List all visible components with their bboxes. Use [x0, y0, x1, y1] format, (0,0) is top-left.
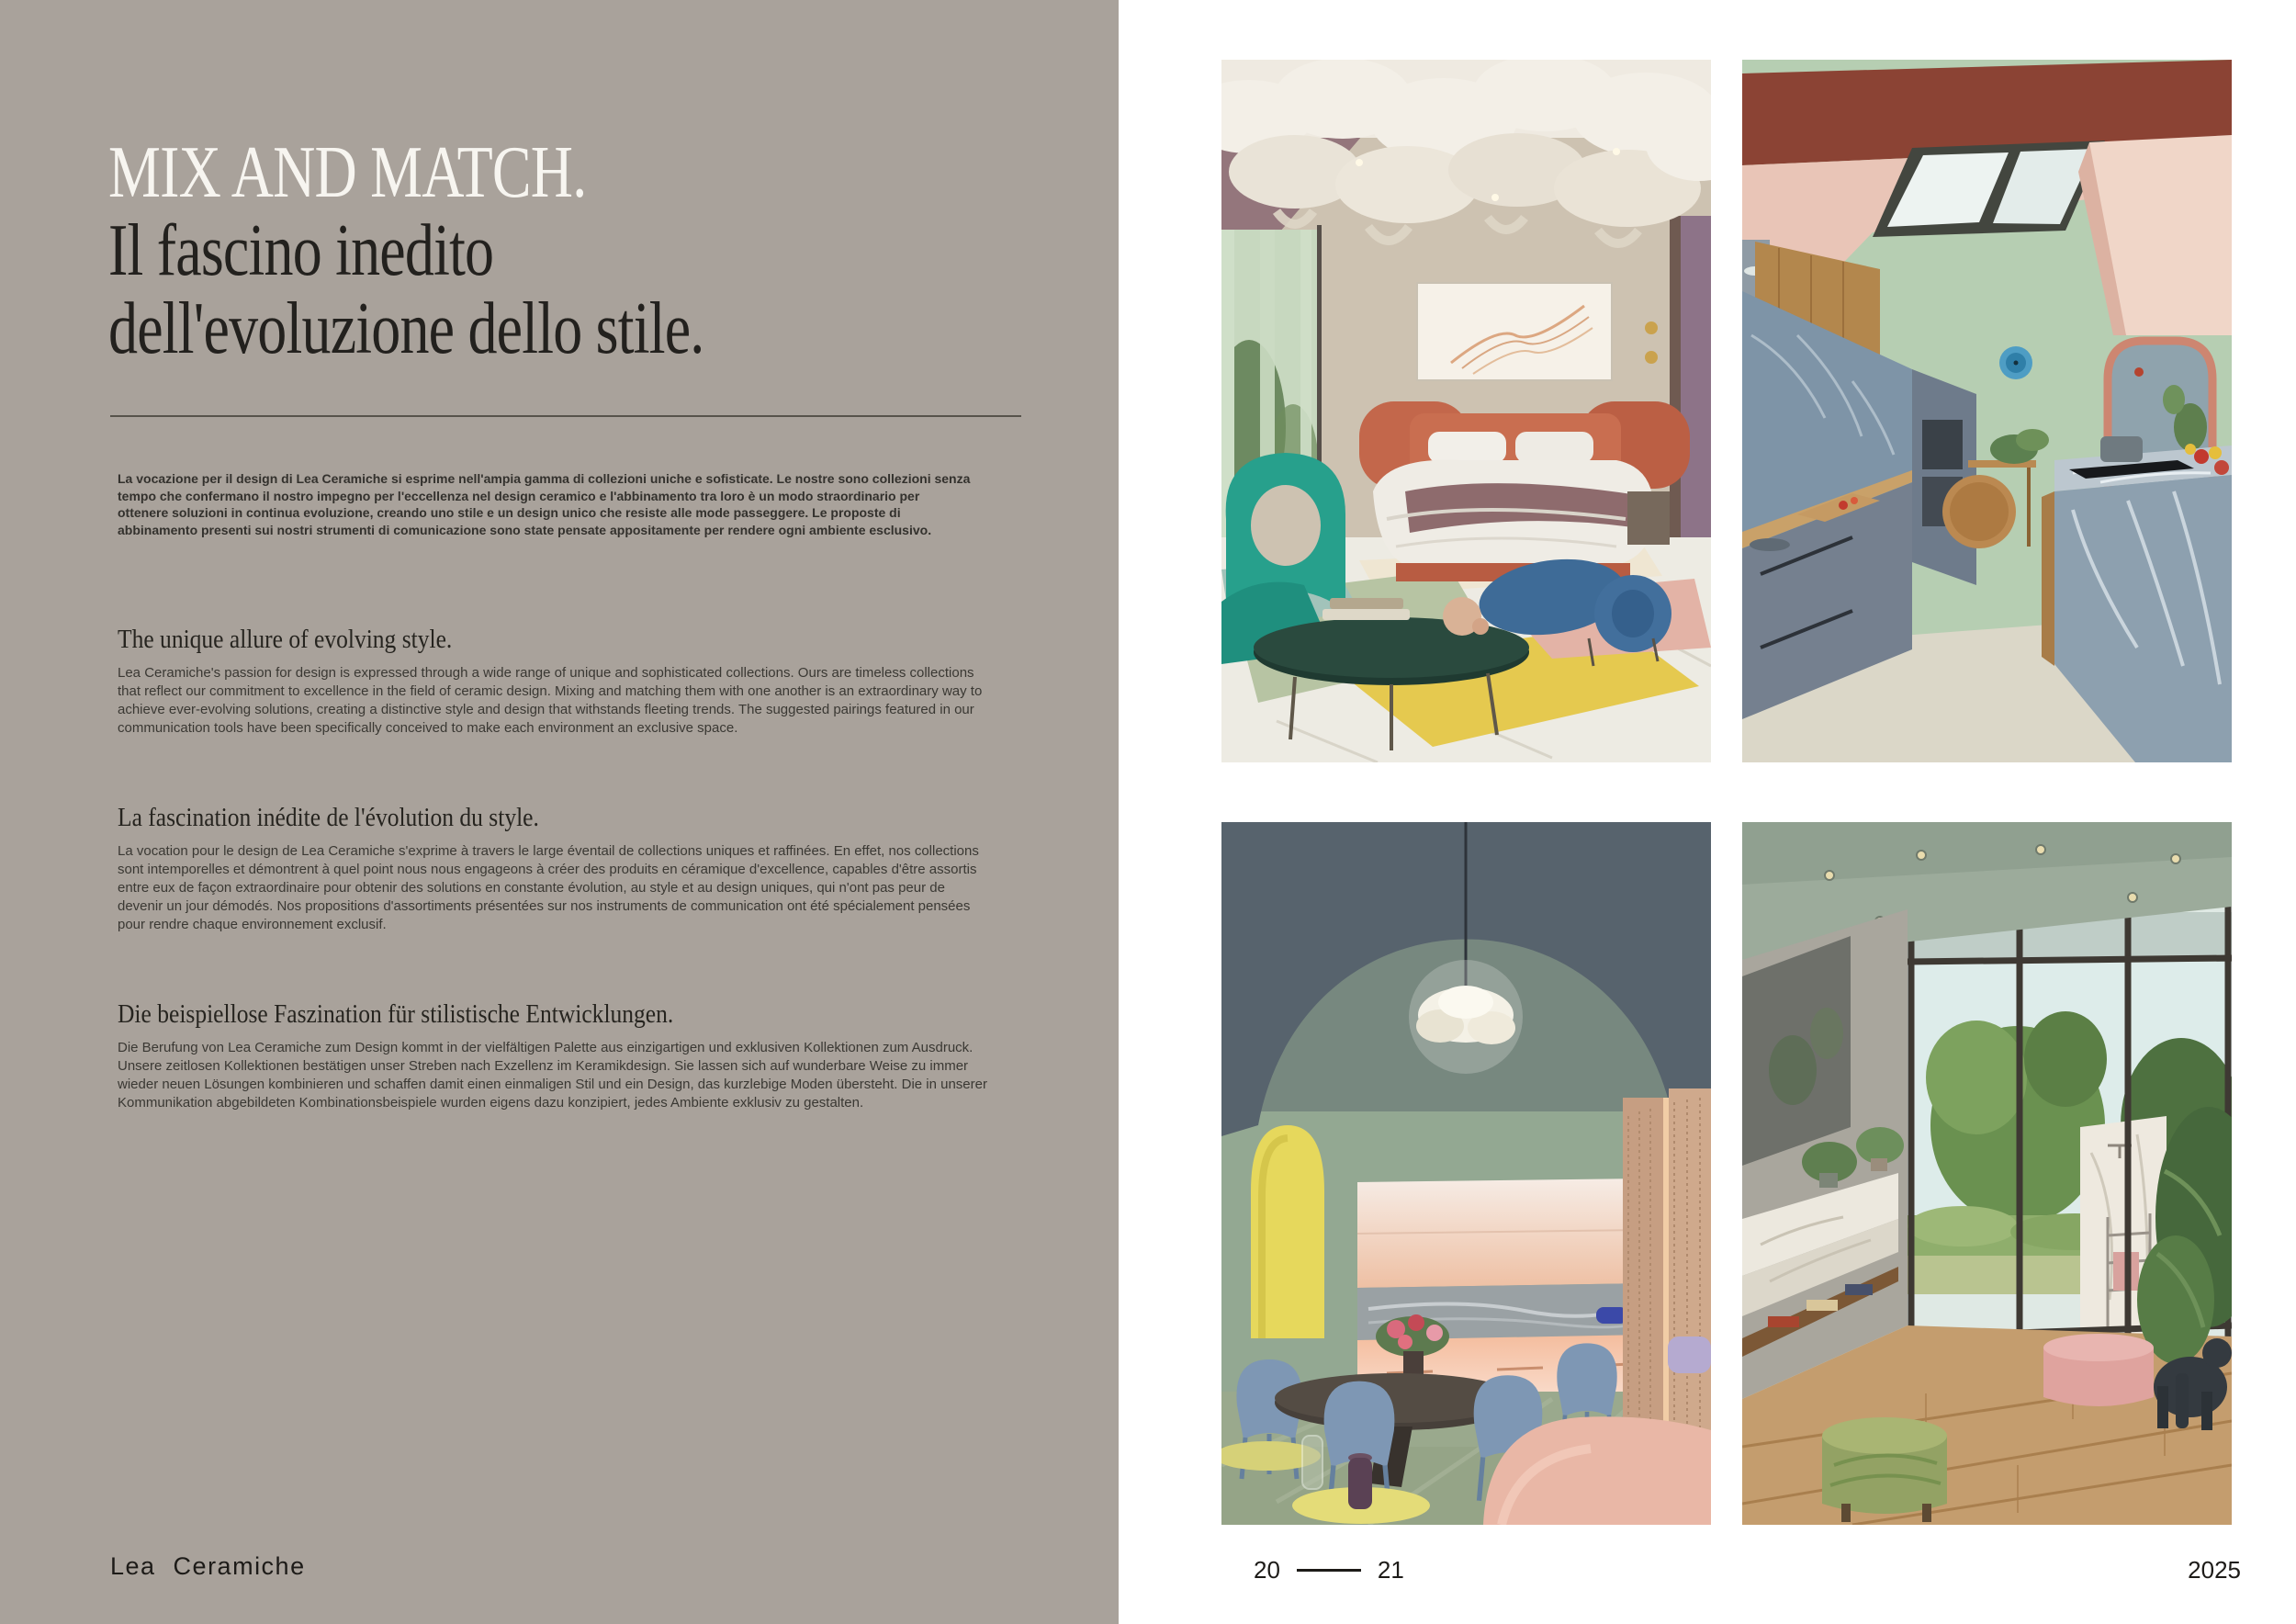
- lavender-bench: [1668, 1336, 1711, 1373]
- wall-sconce: [1645, 351, 1658, 364]
- bedroom-illustration: [1221, 60, 1711, 762]
- section-german: Die beispiellose Faszination für stilist…: [118, 999, 990, 1112]
- pagination: 20 21: [1254, 1556, 1404, 1585]
- divider-rule: [110, 415, 1021, 417]
- pink-pouf: [2043, 1334, 2154, 1406]
- page-number-right: 21: [1378, 1556, 1404, 1585]
- page-number-left: 20: [1254, 1556, 1280, 1585]
- section-body-fr: La vocation pour le design de Lea Cerami…: [118, 842, 990, 934]
- year-label: 2025: [2188, 1556, 2241, 1585]
- bathroom-patio-illustration: [1742, 822, 2232, 1525]
- left-page: MIX AND MATCH. Il fascino inedito dell'e…: [0, 0, 1119, 1624]
- page-dash: [1297, 1569, 1361, 1572]
- page-title: MIX AND MATCH. Il fascino inedito dell'e…: [108, 134, 853, 368]
- photo-dining-room: [1221, 822, 1711, 1525]
- wall-clock: [1999, 346, 2032, 379]
- section-english: The unique allure of evolving style. Lea…: [118, 625, 990, 738]
- catalog-spread: MIX AND MATCH. Il fascino inedito dell'e…: [0, 0, 2296, 1624]
- title-line-3: dell'evoluzione dello stile.: [108, 290, 704, 368]
- section-heading-en: The unique allure of evolving style.: [118, 625, 885, 655]
- wall-sconce: [1645, 321, 1658, 334]
- section-body-de: Die Berufung von Lea Ceramiche zum Desig…: [118, 1039, 990, 1112]
- section-heading-fr: La fascination inédite de l'évolution du…: [118, 803, 885, 833]
- purple-curtain: [1681, 216, 1711, 583]
- title-line-1: MIX AND MATCH.: [108, 134, 704, 212]
- section-heading-de: Die beispiellose Faszination für stilist…: [118, 999, 885, 1030]
- section-body-en: Lea Ceramiche's passion for design is ex…: [118, 664, 990, 738]
- kitchen-illustration: [1742, 60, 2232, 762]
- section-french: La fascination inédite de l'évolution du…: [118, 803, 990, 934]
- photo-kitchen: [1742, 60, 2232, 762]
- title-line-2: Il fascino inedito: [108, 212, 704, 290]
- intro-paragraph-italian: La vocazione per il design di Lea Cerami…: [118, 470, 972, 538]
- photo-bathroom-patio: [1742, 822, 2232, 1525]
- photo-bedroom: [1221, 60, 1711, 762]
- nightstand: [1627, 491, 1670, 545]
- leaf-print-pouf: [1822, 1417, 1947, 1522]
- dining-room-illustration: [1221, 822, 1711, 1525]
- wall-artwork: [1417, 283, 1612, 380]
- right-page: 20 21 2025: [1119, 0, 2296, 1624]
- left-wall-and-vanity: [1742, 909, 1908, 1399]
- brand-footer: Lea Ceramiche: [110, 1552, 306, 1581]
